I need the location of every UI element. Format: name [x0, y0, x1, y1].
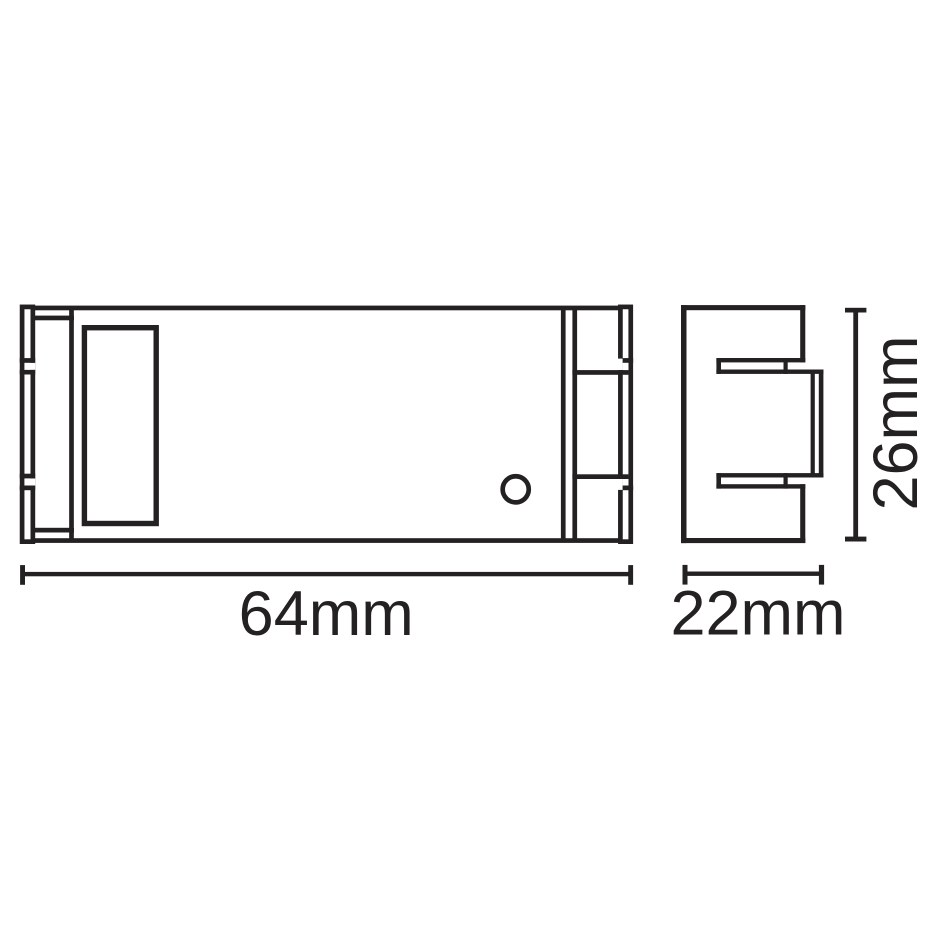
svg-text:26mm: 26mm	[861, 335, 931, 510]
svg-text:64mm: 64mm	[239, 579, 414, 649]
svg-text:22mm: 22mm	[670, 579, 845, 649]
